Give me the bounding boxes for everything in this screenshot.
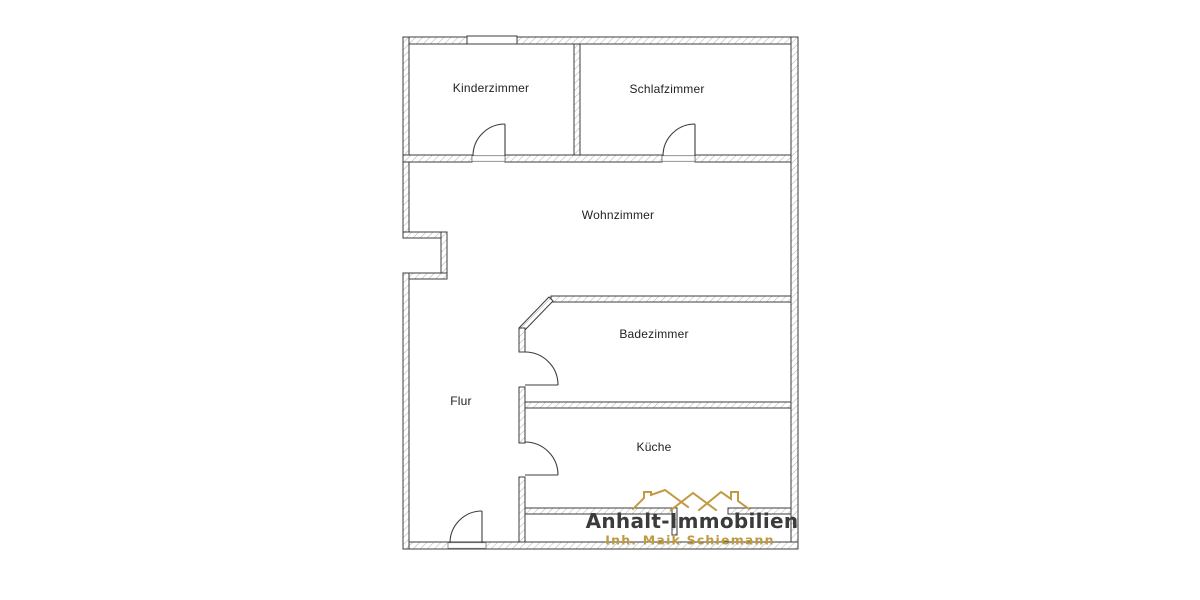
wall-left-lower: [403, 273, 409, 549]
wall-bedrooms-bottom-right: [695, 155, 791, 162]
wall-bath-diagonal: [519, 297, 553, 332]
wall-left-upper: [403, 37, 409, 238]
room-label-kinderzimmer: Kinderzimmer: [453, 81, 529, 95]
wall-right: [791, 37, 798, 549]
wall-bedrooms-bottom-middle: [505, 155, 662, 162]
room-label-badezimmer: Badezimmer: [619, 327, 688, 341]
room-label-kueche: Küche: [636, 440, 671, 454]
kinderzimmer-door-threshold: [472, 156, 505, 162]
logo-title: Anhalt-Immobilien: [586, 509, 799, 533]
wall-niche-bottom: [403, 273, 447, 279]
wall-bedrooms-bottom-left: [403, 155, 472, 162]
rooftops-icon: [630, 485, 755, 512]
wall-bath-kitchen-divider: [525, 402, 791, 408]
room-label-flur: Flur: [450, 394, 471, 408]
logo-subtitle: Inh. Maik Schiemann: [605, 533, 775, 548]
schlafzimmer-door-icon: [663, 124, 695, 156]
openings: [448, 36, 695, 548]
kinderzimmer-door-icon: [473, 124, 505, 156]
wall-niche-top: [403, 232, 447, 238]
wall-bath-top: [551, 296, 791, 302]
wall-hall-right-b: [519, 387, 525, 443]
walls: [403, 37, 798, 549]
badezimmer-door-icon: [525, 352, 558, 385]
wall-niche-right: [441, 232, 447, 279]
room-label-schlafzimmer: Schlafzimmer: [629, 82, 704, 96]
room-label-wohnzimmer: Wohnzimmer: [582, 208, 654, 222]
window-icon: [467, 36, 517, 44]
wall-hall-right-c: [519, 477, 525, 542]
wall-bedroom-divider: [574, 44, 580, 156]
floor-plan-canvas: Kinderzimmer Schlafzimmer Wohnzimmer Bad…: [0, 0, 1200, 600]
entrance-door-icon: [450, 511, 482, 543]
kueche-door-icon: [525, 442, 558, 475]
wall-hall-right-a: [519, 328, 525, 352]
schlafzimmer-door-threshold: [662, 156, 695, 162]
entrance-door-threshold: [448, 543, 486, 549]
wall-top: [403, 37, 797, 44]
